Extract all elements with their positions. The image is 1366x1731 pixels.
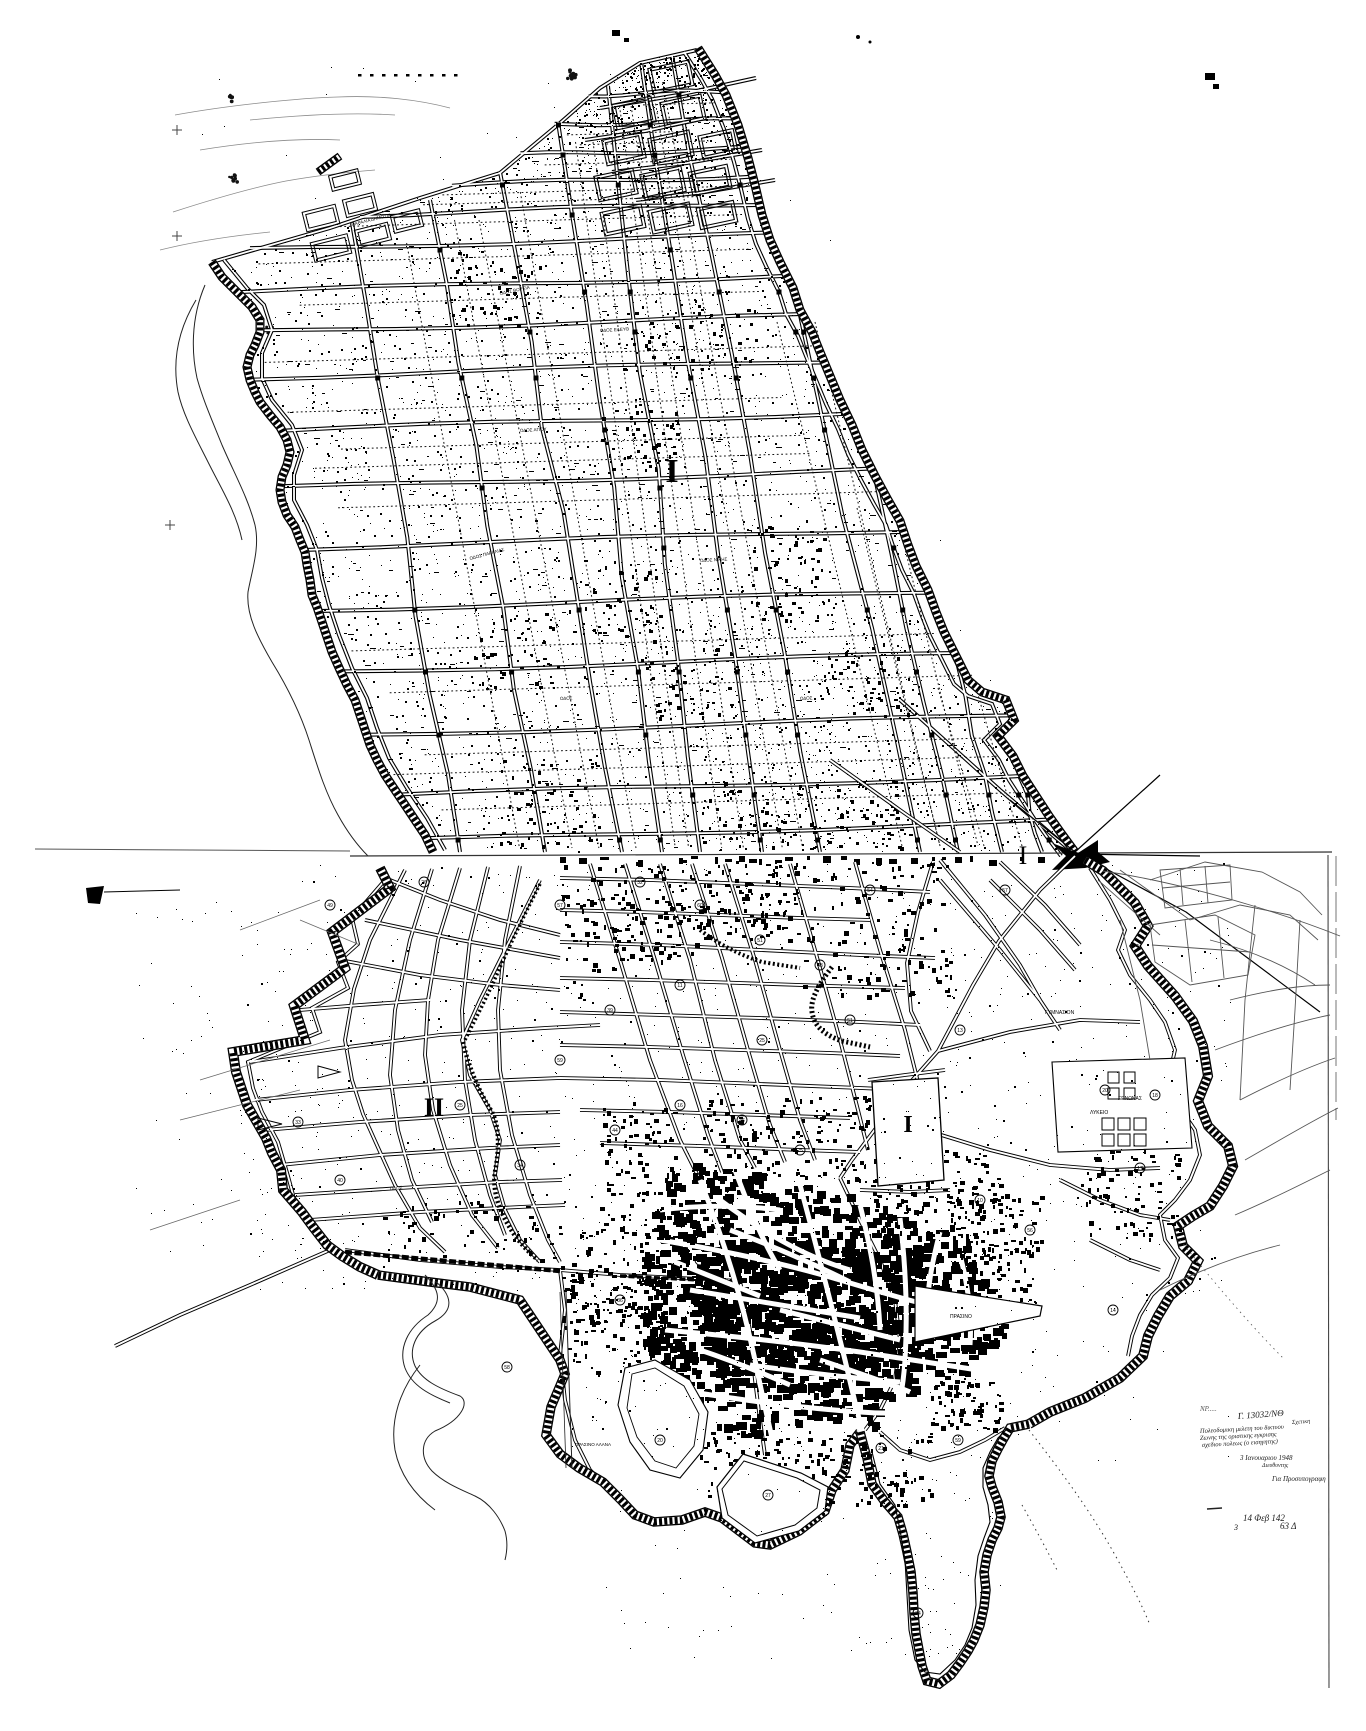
svg-text:3 Ιανουαριου 1948: 3 Ιανουαριου 1948 bbox=[1239, 1454, 1293, 1462]
svg-text:36: 36 bbox=[617, 1298, 623, 1304]
svg-text:49: 49 bbox=[327, 903, 333, 909]
svg-text:27: 27 bbox=[765, 1493, 771, 1499]
svg-text:23: 23 bbox=[697, 1258, 703, 1264]
svg-text:25: 25 bbox=[759, 1038, 765, 1044]
svg-text:39: 39 bbox=[607, 1008, 613, 1014]
svg-text:Για Προσυπογραφη: Για Προσυπογραφη bbox=[1271, 1475, 1326, 1483]
svg-text:ΝΡ.....: ΝΡ..... bbox=[1199, 1405, 1217, 1413]
svg-text:63 Δ: 63 Δ bbox=[1280, 1521, 1296, 1531]
svg-text:54: 54 bbox=[867, 888, 873, 894]
svg-text:13: 13 bbox=[957, 1028, 963, 1034]
svg-text:40: 40 bbox=[337, 1178, 343, 1184]
svg-text:60: 60 bbox=[697, 903, 703, 909]
svg-text:I: I bbox=[903, 1112, 912, 1138]
svg-text:20: 20 bbox=[1102, 1088, 1108, 1094]
svg-text:I: I bbox=[1019, 841, 1028, 870]
svg-text:10: 10 bbox=[977, 1198, 983, 1204]
svg-text:43: 43 bbox=[817, 963, 823, 969]
svg-text:51: 51 bbox=[847, 1018, 853, 1024]
svg-text:34: 34 bbox=[915, 1611, 921, 1617]
svg-text:57: 57 bbox=[557, 903, 563, 909]
svg-text:46: 46 bbox=[739, 1118, 745, 1124]
svg-text:57: 57 bbox=[1002, 888, 1008, 894]
svg-text:ΓΥΜΝΑΣΙΟΝ: ΓΥΜΝΑΣΙΟΝ bbox=[1045, 1010, 1075, 1016]
svg-text:14: 14 bbox=[1110, 1308, 1116, 1314]
svg-text:ΠΡΑΣΙΝΟ ΑΛΑΝΑ: ΠΡΑΣΙΝΟ ΑΛΑΝΑ bbox=[575, 1442, 611, 1447]
svg-text:44: 44 bbox=[612, 1128, 618, 1134]
svg-text:17: 17 bbox=[1137, 1166, 1143, 1172]
svg-text:59: 59 bbox=[557, 1058, 563, 1064]
svg-text:21: 21 bbox=[878, 1446, 884, 1452]
svg-text:11: 11 bbox=[677, 983, 682, 989]
svg-text:59: 59 bbox=[955, 1438, 961, 1444]
svg-text:ΟΔΟΣ: ΟΔΟΣ bbox=[560, 696, 573, 701]
svg-text:I: I bbox=[665, 453, 678, 490]
svg-text:25: 25 bbox=[457, 1103, 463, 1109]
svg-text:ΟΔΟΣ: ΟΔΟΣ bbox=[800, 695, 813, 701]
svg-text:33: 33 bbox=[295, 1120, 301, 1126]
svg-text:58: 58 bbox=[504, 1365, 510, 1371]
svg-text:25: 25 bbox=[797, 1148, 803, 1154]
svg-text:32: 32 bbox=[637, 880, 643, 886]
svg-text:ΛΥΚΕΙΟ: ΛΥΚΕΙΟ bbox=[1090, 1110, 1108, 1116]
svg-text:ΞΕΝΩΝΑΣ: ΞΕΝΩΝΑΣ bbox=[1118, 1096, 1142, 1102]
svg-text:56: 56 bbox=[1027, 1228, 1033, 1234]
svg-text:3: 3 bbox=[1233, 1523, 1238, 1532]
svg-text:51: 51 bbox=[757, 938, 763, 944]
svg-text:18: 18 bbox=[1152, 1093, 1158, 1099]
svg-text:20: 20 bbox=[657, 1438, 663, 1444]
svg-text:Διευθυντης: Διευθυντης bbox=[1261, 1463, 1289, 1469]
svg-text:16: 16 bbox=[677, 1103, 683, 1109]
svg-text:26: 26 bbox=[421, 880, 427, 886]
svg-text:ΠΡΑΣΙΝΟ: ΠΡΑΣΙΝΟ bbox=[950, 1314, 972, 1320]
svg-text:34: 34 bbox=[517, 1163, 523, 1169]
